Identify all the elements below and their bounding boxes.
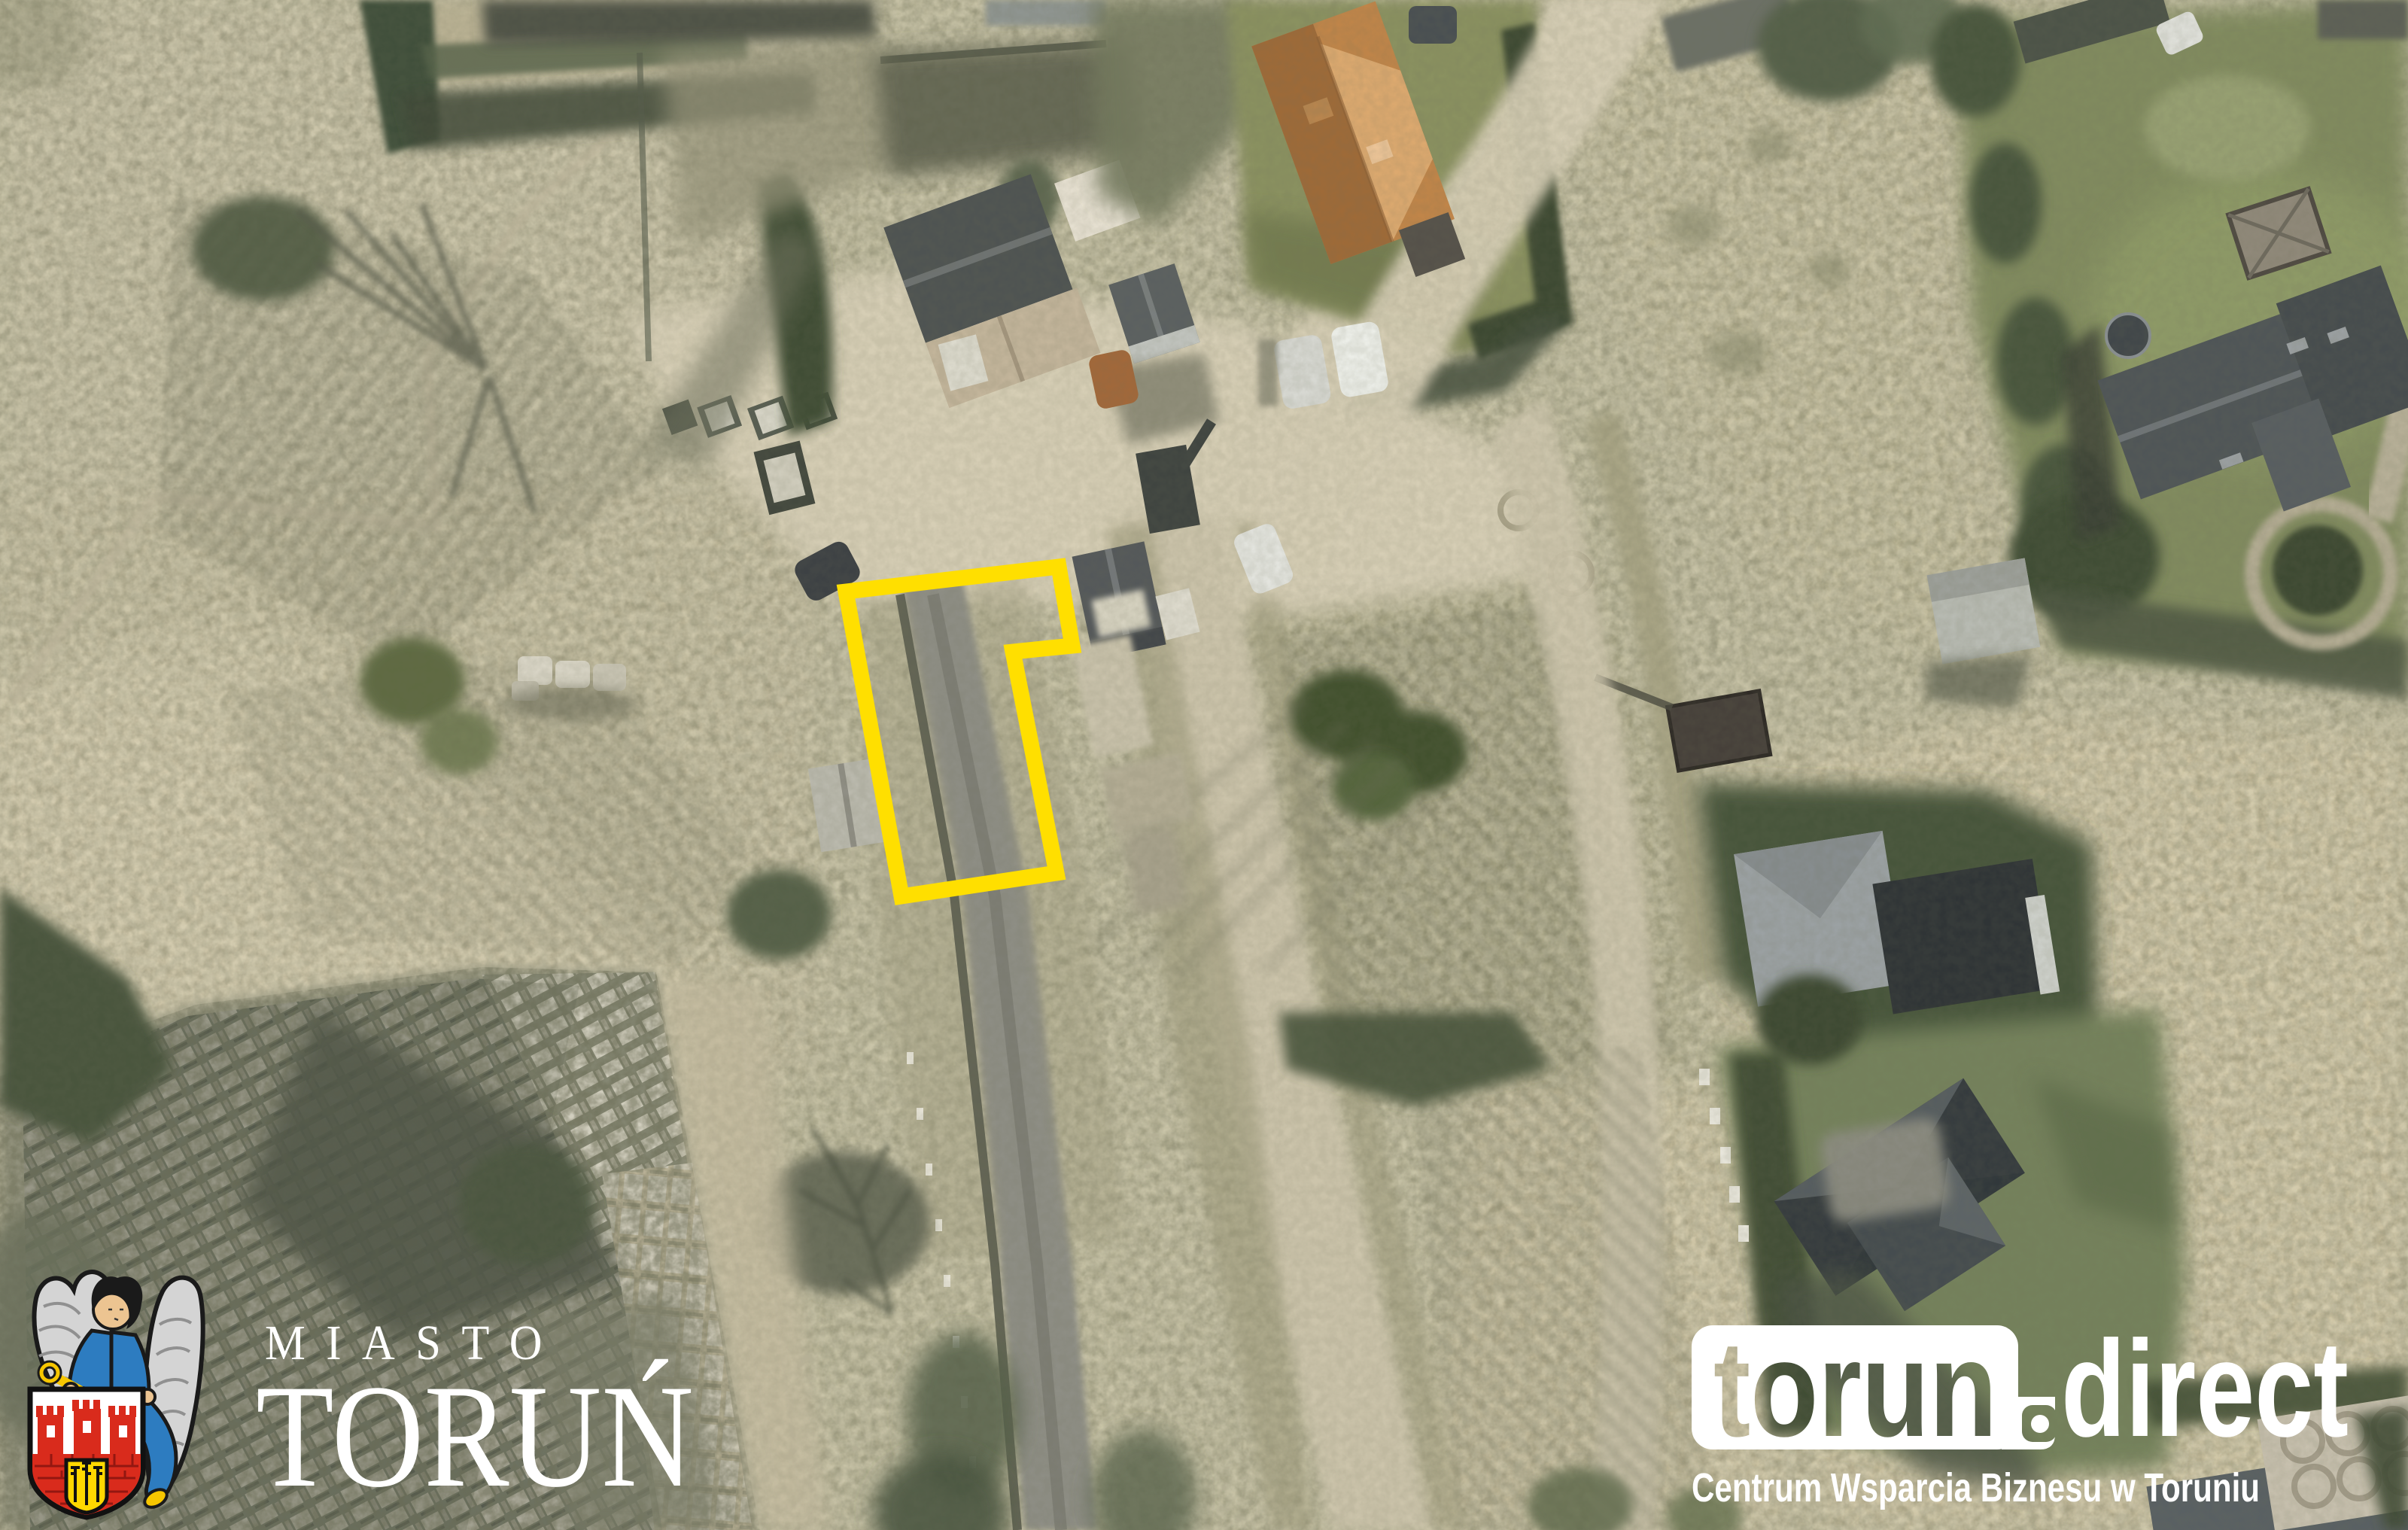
svg-text:TORUŃ: TORUŃ [256, 1355, 694, 1518]
svg-text:direct: direct [2061, 1312, 2349, 1465]
svg-text:Centrum Wsparcia Biznesu w Tor: Centrum Wsparcia Biznesu w Toruniu [1692, 1465, 2260, 1510]
